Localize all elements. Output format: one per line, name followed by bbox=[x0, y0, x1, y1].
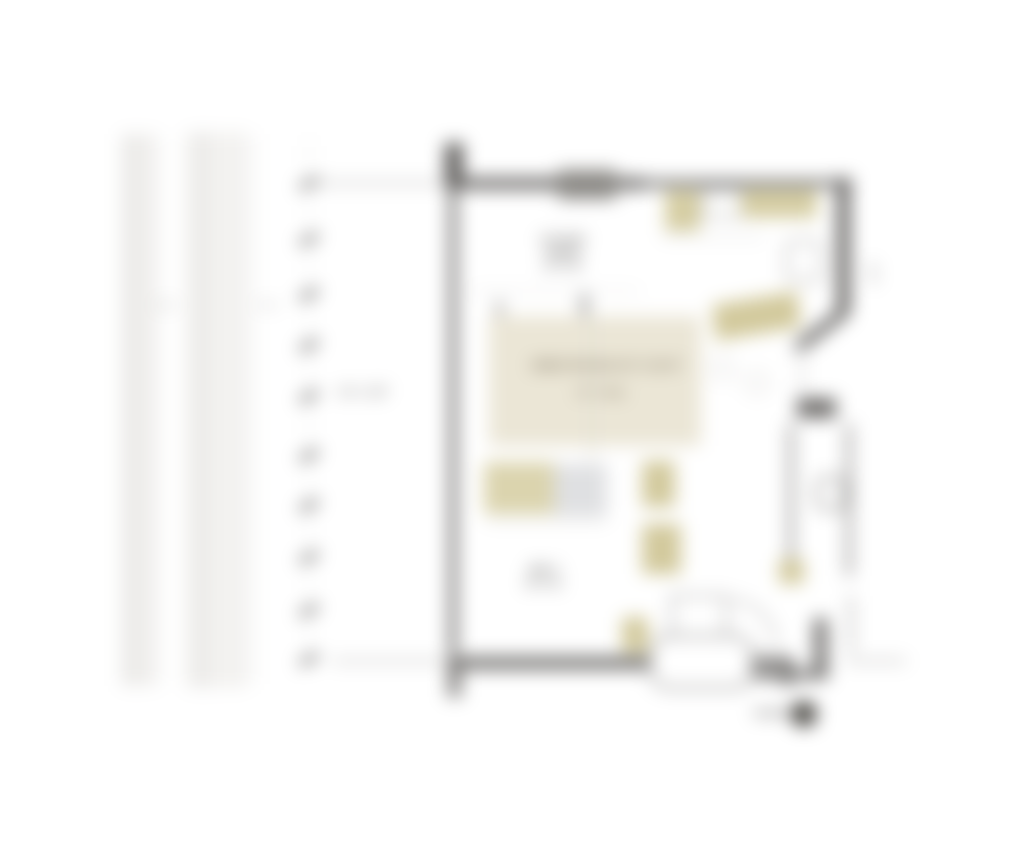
svg-text:10'-1 1/8": 10'-1 1/8" bbox=[338, 385, 389, 399]
svg-text:DINING: DINING bbox=[546, 248, 581, 259]
svg-text:10' X 11': 10' X 11' bbox=[525, 579, 564, 590]
svg-text:6'-0": 6'-0" bbox=[868, 261, 880, 283]
svg-text:BED 2: BED 2 bbox=[529, 565, 559, 576]
svg-text:12' X 10': 12' X 10' bbox=[543, 261, 582, 272]
svg-text:GREAT ROOM 14'-0" X 16'-0": GREAT ROOM 14'-0" X 16'-0" bbox=[531, 360, 682, 372]
svg-text:KITCHEN: KITCHEN bbox=[541, 235, 585, 246]
svg-text:9'-0" CLG.: 9'-0" CLG. bbox=[578, 388, 626, 399]
